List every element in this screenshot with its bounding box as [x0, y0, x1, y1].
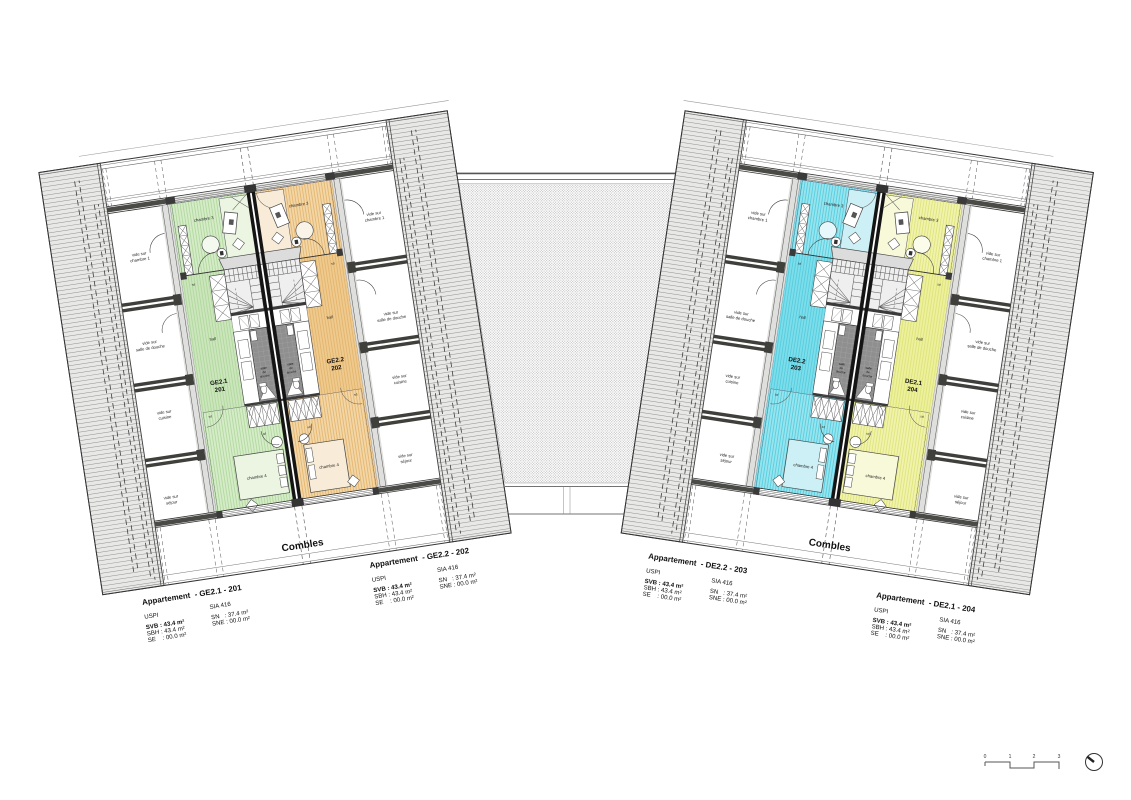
svg-text:hall: hall: [799, 314, 806, 320]
svg-text:3: 3: [1058, 754, 1061, 760]
svg-text:hall: hall: [326, 314, 333, 320]
svg-text:0: 0: [984, 754, 987, 760]
svg-text:hall: hall: [916, 336, 923, 342]
svg-text:2: 2: [1033, 754, 1036, 760]
svg-text:hall: hall: [209, 336, 216, 342]
svg-text:1: 1: [1009, 754, 1012, 760]
